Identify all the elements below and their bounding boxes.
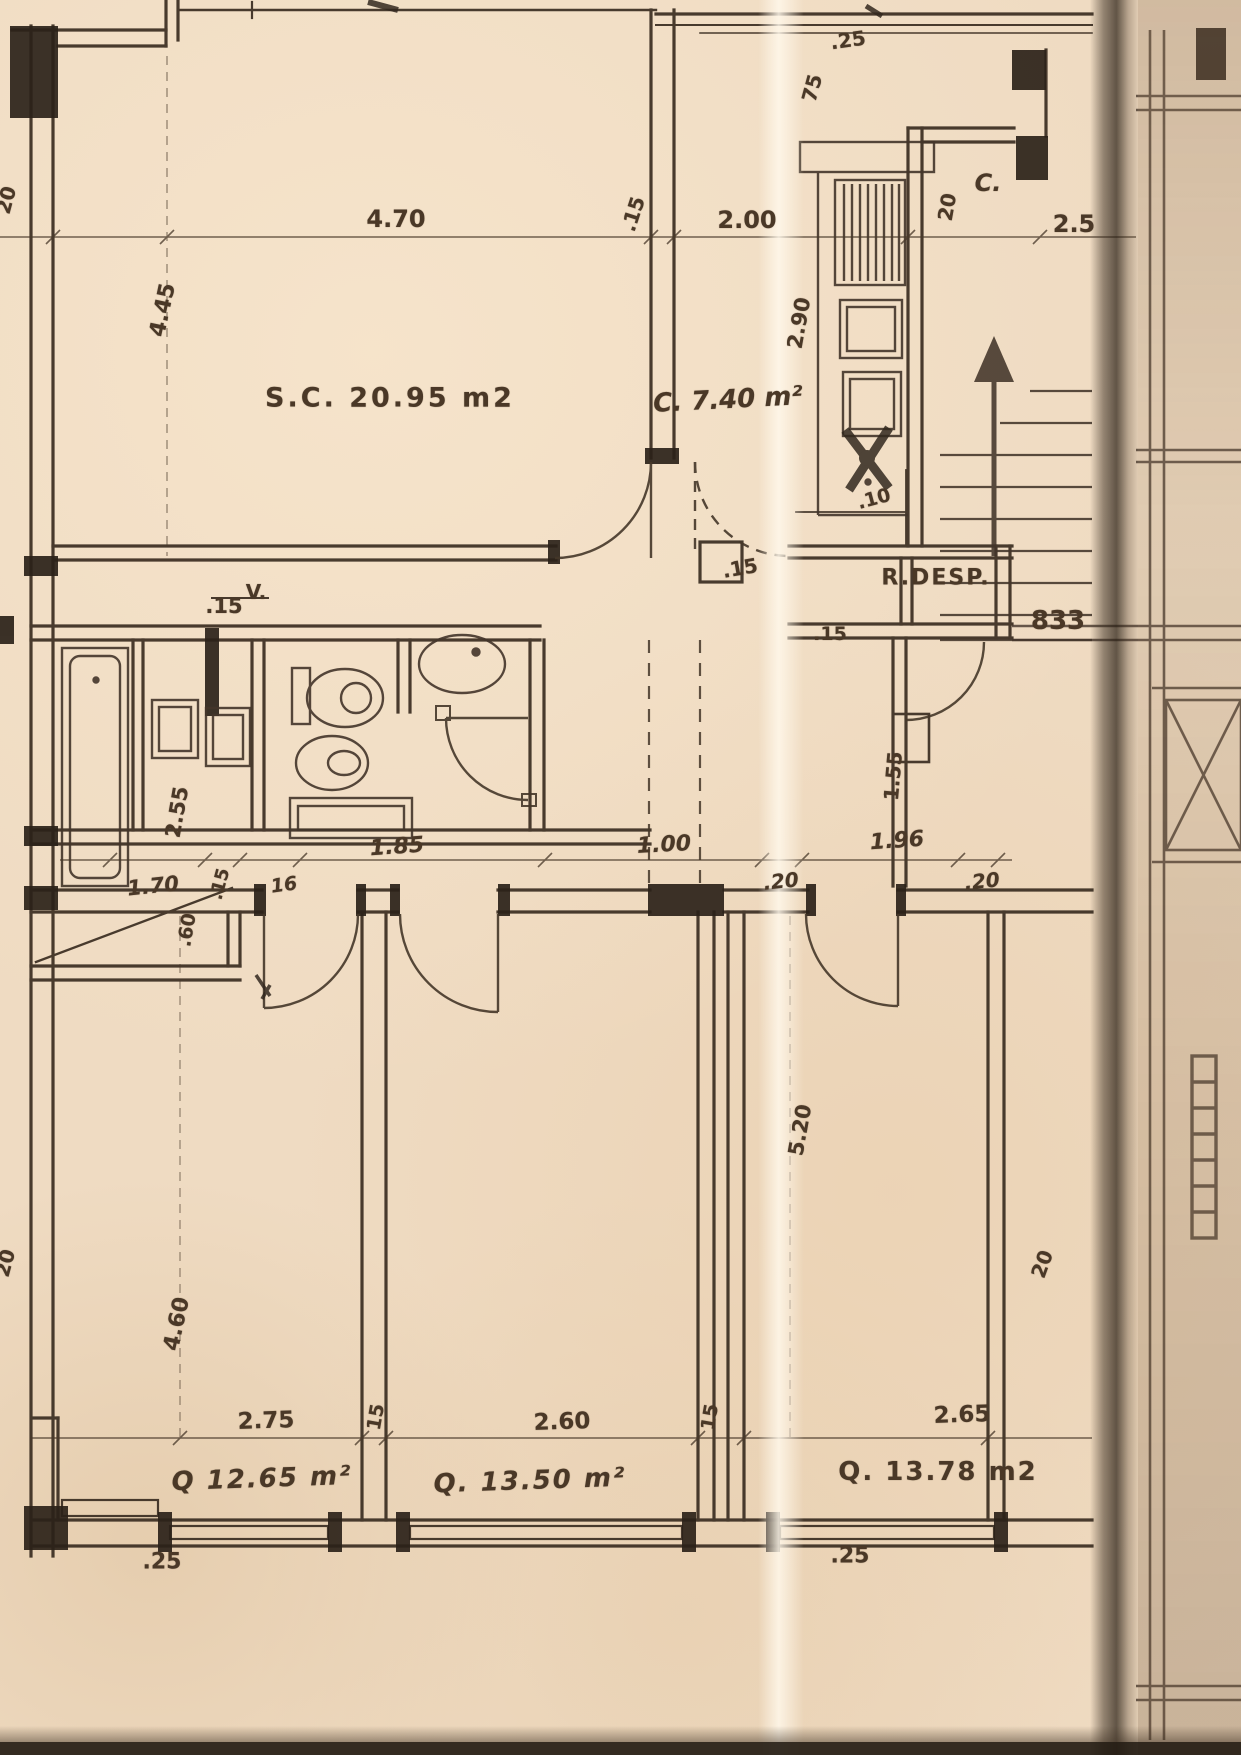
dim-edge-top: 20: [0, 183, 21, 216]
dim-hall-wall: .15: [813, 623, 847, 645]
dim-bedroom1-depth: 4.60: [159, 1295, 195, 1353]
dim-right-wall: 20: [1026, 1247, 1058, 1281]
dim-bottom-right-wall: .25: [831, 1544, 870, 1569]
dim-wall-12: 15: [363, 1402, 389, 1432]
dim-closet-depth: 1.55: [879, 750, 907, 801]
dim-top-wall: .15: [616, 193, 650, 234]
dim-kitchen-depth: 2.90: [783, 295, 816, 350]
room-label-bedroom2: Q. 13.50 m²: [433, 1463, 627, 1500]
plan-labels: .25 75 4.70 .15 2.00 C. 20 2.5 4.45 2.90…: [0, 0, 1241, 1755]
dim-living-width: 4.70: [366, 205, 425, 233]
dim-duct-left: .20: [762, 867, 800, 895]
dim-kitchen-width: 2.00: [717, 206, 776, 234]
room-label-bedroom3: Q. 13.78 m2: [838, 1457, 1038, 1487]
dim-bottom-left-wall: .25: [143, 1550, 182, 1575]
floor-plan-scan: .25 75 4.70 .15 2.00 C. 20 2.5 4.45 2.90…: [0, 0, 1241, 1755]
room-label-vent: V.: [246, 580, 267, 604]
dim-pantry-clear: .10: [855, 484, 893, 514]
dim-bedroom1-width: 2.75: [237, 1407, 295, 1435]
dim-balcony-depth: .60: [173, 912, 201, 949]
room-label-cupboard: C.: [975, 169, 1002, 197]
dim-bath-depth: 2.55: [161, 784, 194, 839]
dim-bath-wall-top: .15: [205, 594, 242, 618]
dim-bedroom3-width: 2.65: [933, 1401, 991, 1429]
dim-shaft-wall: .15: [720, 553, 759, 583]
room-label-pantry: R.DESP.: [881, 566, 990, 591]
annotation-stair-ref: 833: [1031, 606, 1085, 636]
dim-bedroom2-width: 2.60: [533, 1408, 591, 1436]
dim-duct-right: .20: [963, 867, 1001, 895]
room-label-living: S.C. 20.95 m2: [265, 383, 515, 414]
dim-living-height: 4.45: [145, 281, 181, 339]
dim-bedroom3-depth: 5.20: [784, 1102, 817, 1157]
dim-top-wall-vert: 75: [797, 71, 827, 104]
dim-cupboard-depth: 20: [933, 191, 961, 223]
dim-top-offset: .25: [829, 26, 867, 55]
dim-edge-bottom: 20: [0, 1246, 20, 1279]
dim-wall-16: 16: [269, 872, 298, 897]
dim-pantry-width: 1.96: [869, 827, 925, 856]
room-label-bedroom1: Q 12.65 m²: [171, 1461, 353, 1497]
dim-hall-width: 1.00: [636, 831, 692, 859]
dim-wall-23: 15: [697, 1402, 723, 1432]
dim-bath-width: 1.85: [369, 833, 425, 862]
dim-laundry-width: 1.70: [126, 871, 180, 900]
room-label-kitchen: C. 7.40 m²: [652, 381, 803, 419]
dim-stair-width: 2.5: [1053, 210, 1096, 238]
dim-laundry-wall: .15: [206, 866, 235, 902]
